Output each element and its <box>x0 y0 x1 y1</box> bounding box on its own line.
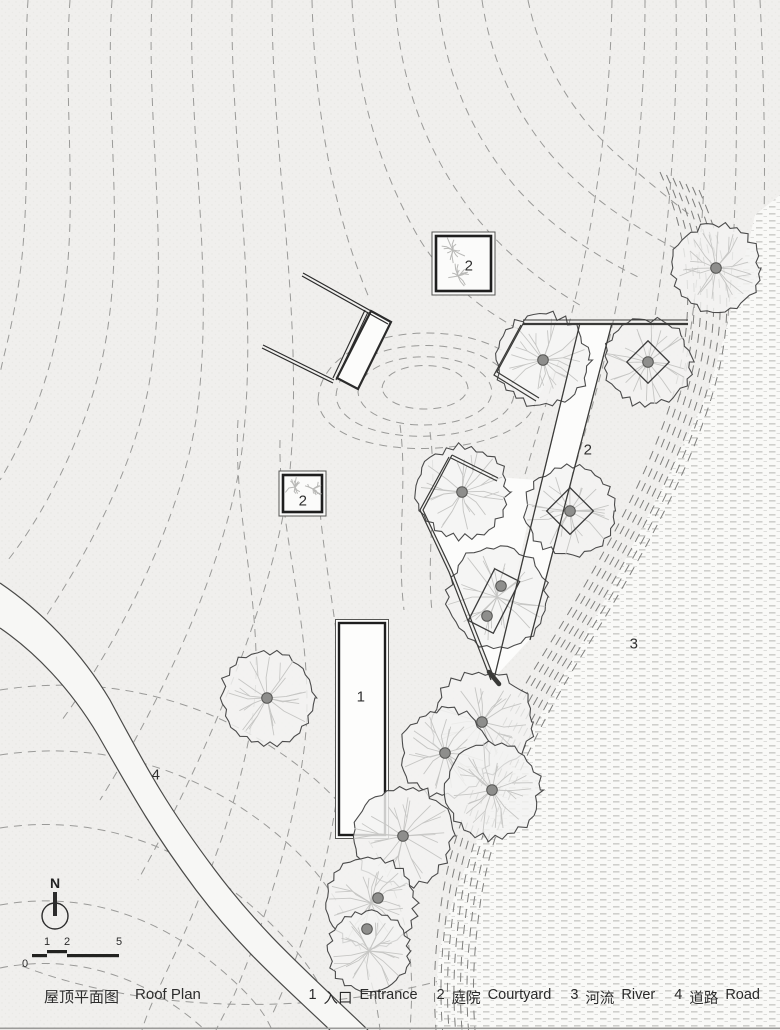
legend-num: 2 <box>437 987 445 1008</box>
legend-zh: 道路 <box>689 987 718 1008</box>
sheet-edge <box>0 1028 780 1030</box>
label-river-3: 3 <box>630 636 639 653</box>
caption-zh: 屋顶平面图 <box>44 986 119 1007</box>
north-letter: N <box>50 875 60 891</box>
label-courtyard-2-top: 2 <box>465 258 474 275</box>
legend-item-road: 4 道路 Road <box>674 987 760 1008</box>
legend: 1 入口 Entrance 2 庭院 Courtyard 3 河流 River … <box>308 987 760 1008</box>
roof-plan-drawing: 1 2 2 2 3 4 N 0 1 2 5 屋顶平面图 Roof Plan 1 … <box>0 0 780 1030</box>
legend-num: 3 <box>570 987 578 1008</box>
caption-en: Roof Plan <box>135 986 201 1007</box>
scale-tick-0: 0 <box>22 958 28 970</box>
site-plan-svg <box>0 0 780 1030</box>
legend-num: 4 <box>674 987 682 1008</box>
legend-en: River <box>621 987 655 1008</box>
label-courtyard-2-left: 2 <box>299 493 308 510</box>
label-courtyard-2-strip: 2 <box>584 442 593 459</box>
drawing-caption: 屋顶平面图 Roof Plan <box>44 986 201 1007</box>
legend-item-entrance: 1 入口 Entrance <box>308 987 417 1008</box>
legend-item-courtyard: 2 庭院 Courtyard <box>437 987 552 1008</box>
label-entrance-1: 1 <box>357 689 366 706</box>
legend-item-river: 3 河流 River <box>570 987 655 1008</box>
legend-zh: 入口 <box>324 987 353 1008</box>
legend-zh: 庭院 <box>452 987 481 1008</box>
legend-num: 1 <box>308 987 316 1008</box>
scale-tick-2: 2 <box>64 936 70 948</box>
legend-en: Courtyard <box>488 987 552 1008</box>
scale-tick-1: 1 <box>44 936 50 948</box>
label-road-4: 4 <box>152 767 161 784</box>
legend-zh: 河流 <box>585 987 614 1008</box>
legend-en: Entrance <box>360 987 418 1008</box>
legend-en: Road <box>725 987 760 1008</box>
scale-tick-5: 5 <box>116 936 122 948</box>
